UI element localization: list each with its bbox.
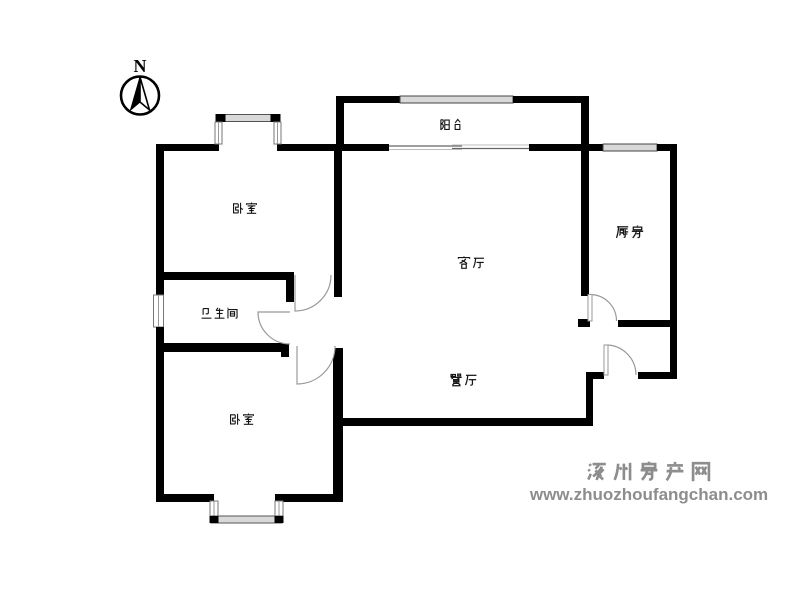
- svg-text:www.zhuozhoufangchan.com: www.zhuozhoufangchan.com: [529, 485, 768, 504]
- svg-text:N: N: [134, 56, 147, 76]
